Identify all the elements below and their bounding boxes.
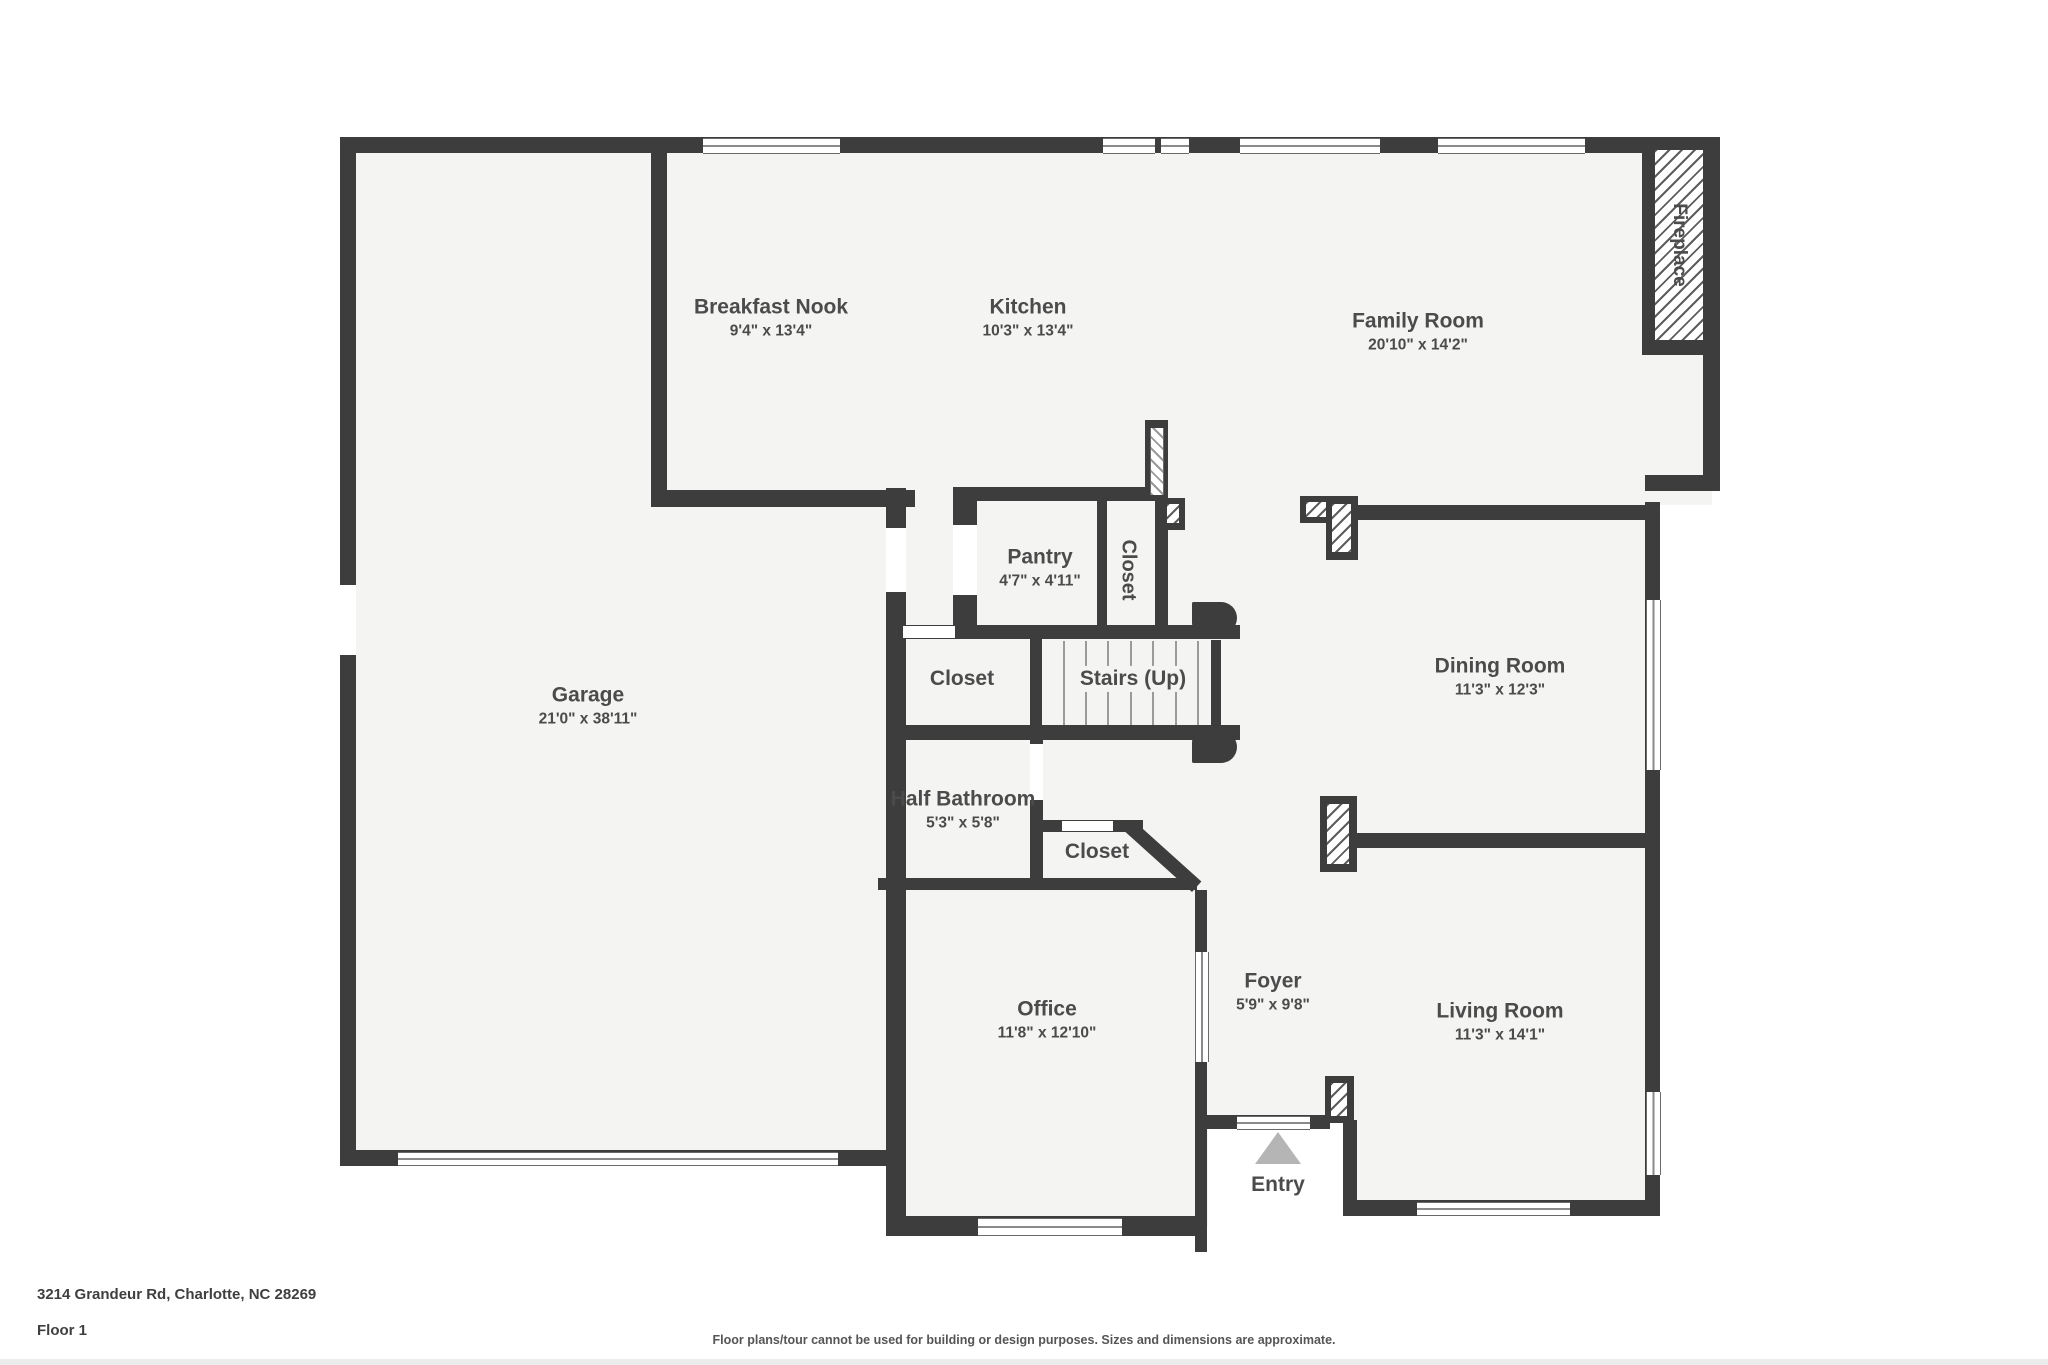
footer-floor: Floor 1: [37, 1322, 87, 1339]
wall: [1703, 137, 1720, 490]
room-label-family-room: Family Room 20'10" x 14'2": [1352, 309, 1484, 354]
room-label-office: Office 11'8" x 12'10": [998, 997, 1097, 1042]
door-opening: [903, 626, 955, 638]
room-label-garage: Garage 21'0" x 38'11": [539, 683, 638, 728]
wall: [1211, 640, 1221, 725]
window: [1161, 138, 1189, 154]
floor-plan: Fireplace Breakfast Nook 9'4": [0, 0, 2048, 1365]
stair-tread: [1063, 641, 1065, 725]
opening-post: [1326, 496, 1358, 560]
wall: [1645, 475, 1720, 491]
footer-disclaimer: Floor plans/tour cannot be used for buil…: [712, 1333, 1335, 1347]
footer-address: 3214 Grandeur Rd, Charlotte, NC 28269: [37, 1286, 316, 1303]
floor-area: [348, 505, 900, 1160]
wall: [1195, 1115, 1207, 1252]
entry-arrow-icon: [1255, 1132, 1301, 1164]
wall: [1642, 340, 1720, 355]
wall: [651, 137, 667, 507]
wall: [1642, 140, 1655, 355]
entry-opening: [1237, 1116, 1310, 1130]
room-label-half-bathroom: Half Bathroom 5'3" x 5'8": [888, 787, 1038, 832]
room-label-stairs: Stairs (Up): [1075, 666, 1191, 692]
stair-tread: [1197, 641, 1199, 725]
floor-area: [1208, 498, 1653, 1118]
window: [1646, 1092, 1661, 1175]
room-label-pantry: Pantry 4'7" x 4'11": [999, 545, 1081, 590]
window: [978, 1218, 1122, 1236]
window: [1240, 138, 1380, 154]
wall: [886, 488, 906, 1236]
wall: [1030, 639, 1042, 725]
room-label-closet-foyer: Closet: [1065, 840, 1129, 864]
room-label-foyer: Foyer 5'9" x 9'8": [1236, 969, 1310, 1014]
window: [1646, 600, 1661, 770]
door-opening: [1150, 428, 1164, 495]
door-opening: [886, 528, 906, 592]
bottom-edge: [0, 1359, 2048, 1365]
wall: [1097, 501, 1107, 627]
wall: [1355, 833, 1650, 848]
room-label-closet-hall: Closet: [930, 667, 994, 691]
window: [1438, 138, 1585, 154]
opening-post: [1320, 796, 1357, 872]
wall: [1343, 1120, 1357, 1216]
room-label-living-room: Living Room 11'3" x 14'1": [1436, 999, 1563, 1044]
wall: [651, 490, 915, 507]
garage-door: [398, 1152, 838, 1166]
room-label-entry: Entry: [1251, 1173, 1305, 1197]
door-opening: [1195, 952, 1209, 1062]
room-label-dining-room: Dining Room 11'3" x 12'3": [1435, 654, 1566, 699]
room-label-breakfast-nook: Breakfast Nook 9'4" x 13'4": [694, 295, 848, 340]
opening-post: [1325, 1076, 1354, 1123]
window: [1103, 138, 1155, 154]
wall: [953, 487, 1167, 501]
stair-newel-top: [1192, 602, 1237, 634]
wall: [886, 725, 1240, 740]
opening-post: [1162, 498, 1185, 530]
room-label-kitchen: Kitchen 10'3" x 13'4": [982, 295, 1073, 340]
fireplace-label: Fireplace: [1668, 203, 1690, 286]
stair-newel-bottom: [1192, 731, 1237, 763]
window: [703, 138, 840, 154]
wall: [878, 878, 1197, 890]
door-opening: [953, 525, 977, 595]
door-opening: [1062, 821, 1113, 831]
wall: [1352, 505, 1648, 520]
room-label-closet-kitchen: Closet: [1117, 539, 1140, 600]
door-opening: [340, 585, 356, 655]
floor-area: [1350, 1115, 1653, 1210]
window: [1417, 1202, 1570, 1216]
